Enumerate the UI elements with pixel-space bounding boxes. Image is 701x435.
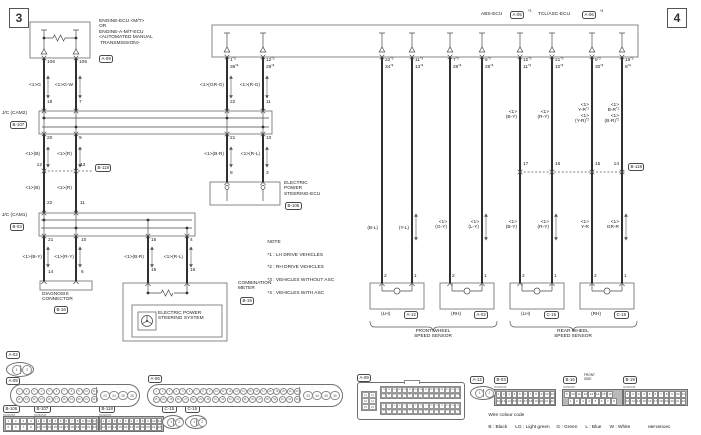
page-ref-left: 3 bbox=[9, 8, 29, 28]
pin-number: 11*4 bbox=[523, 65, 531, 70]
wire-label: <1>(B) bbox=[25, 186, 40, 191]
pin-cell: 11 bbox=[550, 391, 555, 398]
pin-circle: 21 bbox=[83, 396, 90, 403]
connector-oval-A-05: 1234567891011121314151617181920212223242… bbox=[10, 384, 140, 407]
diagnosis-connector-title: DIAGNOSISCONNECTOR bbox=[42, 292, 73, 303]
pin-circle: 14 bbox=[31, 396, 38, 403]
connector-oval-A-06: 1234567891011121314151617181920212223242… bbox=[147, 384, 343, 407]
pin-circle: 24 bbox=[160, 396, 167, 403]
pin-circle: 9 bbox=[76, 388, 83, 395]
pin-circle: 29 bbox=[197, 396, 204, 403]
strip-connector-label: A-12 bbox=[470, 376, 484, 384]
strip-connector-label: A-09 bbox=[357, 374, 371, 382]
pin-number: 6 bbox=[81, 270, 84, 275]
pin-circle: 19 bbox=[68, 396, 75, 403]
pin-number: 12 bbox=[37, 163, 42, 168]
pin-cell: 5 bbox=[5, 424, 13, 431]
pin-number: 10 bbox=[81, 238, 86, 243]
pin-circle: 41 bbox=[286, 396, 293, 403]
sensor-side-label: (RH) bbox=[451, 312, 461, 317]
sensor-side-label: (LH) bbox=[381, 312, 390, 317]
sensor-side-label: (LH) bbox=[521, 312, 530, 317]
pin-circle: 2 bbox=[22, 365, 32, 375]
wire-label: <1>G-W bbox=[55, 83, 73, 88]
pin-circle: 10 bbox=[213, 388, 220, 395]
combination-meter-label: B-19 bbox=[240, 297, 254, 305]
connector-pin-grid-B-19: 12345678910111213141516171819202122 bbox=[623, 389, 688, 406]
pin-number: 1 bbox=[554, 274, 557, 279]
eps-ecu-title: ELECTRICPOWERSTEERING-ECU bbox=[284, 181, 320, 197]
strip-connector-label: B-16 bbox=[563, 376, 577, 384]
pin-circle: 39 bbox=[271, 396, 278, 403]
wire-label: <1>(R-G) bbox=[240, 83, 260, 88]
pin-circle: 12 bbox=[16, 396, 23, 403]
pin-number: 39*4 bbox=[230, 65, 238, 70]
pin-number: 2 bbox=[452, 274, 455, 279]
pin-circle: 10 bbox=[83, 388, 90, 395]
strip-connector-label: A-06 bbox=[148, 375, 162, 383]
wire-label: <1>(B-R) bbox=[204, 152, 224, 157]
pin-circle: 4 bbox=[38, 388, 45, 395]
wire-label: <1>GR-R bbox=[607, 220, 619, 231]
pin-cell: 15 bbox=[362, 404, 369, 410]
pin-block: 7778798081828384858687888990919293949596… bbox=[380, 386, 461, 399]
wire-label: <1>(B-R) bbox=[124, 255, 144, 260]
pin-circle: 40 bbox=[279, 396, 286, 403]
engine-ecu-connector-label: A-09 bbox=[99, 55, 113, 63]
pin-number: 22 bbox=[47, 201, 52, 206]
pin-number: 13*4 bbox=[415, 65, 423, 70]
connector-pin-grid-B-118: 12345678910111213141516171819202122 bbox=[99, 416, 164, 432]
pin-number: 30*4 bbox=[595, 65, 603, 70]
pin-number: 18 bbox=[47, 100, 52, 105]
pin-circle: 3 bbox=[166, 388, 173, 395]
footnote-ref: *4 bbox=[600, 9, 603, 14]
wire-label: <1>(R-L) bbox=[164, 255, 183, 260]
wire-colour-legend: Wire colour code B : Black LG : Light gr… bbox=[483, 407, 634, 435]
pin-number: 16 bbox=[190, 268, 195, 273]
strip-connector-label: B-03 bbox=[494, 376, 508, 384]
pin-circle: 2 bbox=[198, 418, 207, 427]
wire-label: <1>(L-Y) bbox=[468, 220, 479, 231]
connector-rect-A-09: 1112131415167778798081828384858687888990… bbox=[357, 382, 465, 420]
pin-number: 15 bbox=[151, 238, 156, 243]
pin-circle: 30 bbox=[204, 396, 211, 403]
oval-divider bbox=[483, 389, 484, 397]
pin-number: 3 bbox=[266, 171, 269, 176]
pin-circle: 20 bbox=[76, 396, 83, 403]
pin-cell: 22 bbox=[92, 424, 98, 431]
pin-circle: 25 bbox=[167, 396, 174, 403]
pin-cell: 22 bbox=[681, 398, 687, 405]
wire-label: <1>(R) bbox=[57, 152, 72, 157]
pin-circle: 1 bbox=[16, 388, 23, 395]
oval-divider bbox=[96, 387, 97, 402]
pin-number: 28*4 bbox=[485, 65, 493, 70]
sensor-connector-label: C-15 bbox=[544, 311, 559, 319]
pin-number: 8*4 bbox=[625, 65, 631, 70]
wire-label: <1>G bbox=[29, 83, 41, 88]
tcl-asc-ecu-title: TCL/ASC-ECU bbox=[538, 12, 570, 17]
pin-circle: 34 bbox=[234, 396, 241, 403]
front-side-note: FRONTSIDE bbox=[584, 374, 595, 381]
connector-oval-C-15: 12 bbox=[162, 415, 184, 429]
pin-circle: 26 bbox=[175, 396, 182, 403]
connector-pin-grid-B-107: 12345678910111213141516171819202122 bbox=[34, 416, 99, 432]
pin-circle: 46 bbox=[330, 391, 340, 401]
pin-circle: 2 bbox=[485, 389, 494, 398]
note-line: *3 : VEHICLES WITHOUT ASC bbox=[267, 278, 334, 283]
note-line: *2 : RH DRIVE VEHICLES bbox=[267, 265, 324, 270]
pin-number: 2 bbox=[522, 274, 525, 279]
page-ref-right: 4 bbox=[667, 8, 687, 28]
pin-circle: 7 bbox=[61, 388, 68, 395]
pin-circle: 23 bbox=[153, 396, 160, 403]
wire-label: <1>(B-Y) bbox=[506, 220, 517, 231]
pin-circle: 17 bbox=[260, 388, 267, 395]
pin-block: 111213141516 bbox=[361, 391, 377, 411]
oval-divider bbox=[299, 387, 300, 402]
pin-cell: 22 bbox=[157, 424, 163, 431]
connector-pin-grid-B-16: 91011121314151612345678 bbox=[562, 389, 623, 406]
pin-number: 105 bbox=[79, 60, 87, 65]
legend-row: B : Black LG : Light green G : Green L :… bbox=[488, 425, 630, 430]
pin-circle: 36 bbox=[249, 396, 256, 403]
pin-number: 8 bbox=[230, 171, 233, 176]
pin-number: 11 bbox=[80, 201, 85, 206]
pin-number: 21 bbox=[230, 136, 235, 141]
connector-pin-grid-B-03: 12345678910111213141516171819202122 bbox=[494, 389, 556, 406]
wire-label: <1>Y-R*1<1>(Y-R)*2 bbox=[575, 103, 589, 125]
wire-label: <1>B-R*1<1>(B-R)*2 bbox=[605, 103, 619, 125]
wire-label: (B-L) bbox=[367, 226, 378, 231]
pin-cell: 8 bbox=[611, 398, 617, 405]
abs-ecu-title: ABS-ECU bbox=[481, 12, 502, 17]
connector-pin-grid-B-106: 12345678 bbox=[3, 416, 36, 432]
pin-circle: 5 bbox=[46, 388, 53, 395]
strip-connector-label: B-19 bbox=[623, 376, 637, 384]
jc-cam1-title: J/C (CAM1) bbox=[2, 213, 27, 218]
note-line: *4 : VEHICLES WITH ASC bbox=[267, 291, 324, 296]
wire-label: <1>(B-Y) bbox=[23, 255, 42, 260]
wire-label: <1>(R-L) bbox=[241, 152, 260, 157]
pin-circle: 14 bbox=[240, 388, 247, 395]
pin-number: 29*4 bbox=[453, 65, 461, 70]
pin-cell: 16 bbox=[369, 404, 376, 410]
pin-circle: 2 bbox=[23, 388, 30, 395]
pin-number: 16 bbox=[555, 162, 560, 167]
pin-number: 2 bbox=[384, 274, 387, 279]
pin-number: 9 bbox=[79, 136, 82, 141]
doc-code: HBF15E029C bbox=[648, 425, 670, 430]
pin-number: 29*4 bbox=[266, 65, 274, 70]
note-title: NOTE bbox=[267, 240, 280, 245]
oval-divider bbox=[20, 365, 21, 374]
connector-notch bbox=[404, 380, 420, 384]
strip-connector-label: A-02 bbox=[6, 351, 20, 359]
combination-meter-title: COMBINATIONMETER bbox=[238, 281, 272, 292]
sensor-connector-label: A-12 bbox=[404, 311, 418, 319]
abs-ecu-connector-label: A-05 bbox=[510, 11, 524, 19]
pin-number: 15 bbox=[595, 162, 600, 167]
pin-number: 10*4 bbox=[555, 65, 563, 70]
pin-circle: 8 bbox=[68, 388, 75, 395]
pin-number: 15 bbox=[151, 268, 156, 273]
pin-cell: 6 bbox=[12, 424, 20, 431]
pin-number: 21 bbox=[48, 238, 53, 243]
pin-cell: 7 bbox=[20, 424, 28, 431]
diagnosis-connector-label: B-16 bbox=[54, 306, 68, 314]
pin-number: 4 bbox=[190, 238, 193, 243]
pin-number: 2 bbox=[594, 274, 597, 279]
pin-block: 1234567891011121314151617181920212223242… bbox=[380, 402, 461, 415]
eps-system-title: ELECTRIC POWERSTEERING SYSTEM bbox=[158, 311, 204, 322]
pin-cell: 16 bbox=[607, 391, 613, 398]
pin-number: 1 bbox=[484, 274, 487, 279]
eps-ecu-connector-label: B-106 bbox=[285, 202, 302, 210]
wire-label: <1>(R-Y) bbox=[538, 110, 549, 121]
pin-circle: 27 bbox=[182, 396, 189, 403]
pin-number: 14 bbox=[48, 270, 53, 275]
wire-label: <1>(B-Y) bbox=[506, 110, 517, 121]
pin-circle: 38 bbox=[264, 396, 271, 403]
note-block: NOTE *1 : LH DRIVE VEHICLES *2 : RH DRIV… bbox=[262, 234, 334, 303]
pin-number: 20 bbox=[47, 136, 52, 141]
wire-label: <1>(R) bbox=[57, 186, 72, 191]
pin-number: 34*4 bbox=[385, 65, 393, 70]
pin-circle: 32 bbox=[219, 396, 226, 403]
pin-circle: 31 bbox=[212, 396, 219, 403]
front-wheel-sensor-title: FRONT WHEELSPEED SENSOR bbox=[414, 329, 452, 340]
wire-label: <1>(R-Y) bbox=[54, 255, 74, 260]
sensor-side-label: (RH) bbox=[591, 312, 601, 317]
wire-label: <1>(G-Y) bbox=[435, 220, 447, 231]
b118-junction-label: B-118 bbox=[95, 164, 111, 172]
connector-oval-A-02: 12 bbox=[6, 362, 34, 377]
legend-title: Wire colour code bbox=[488, 413, 524, 418]
pin-number: 7 bbox=[79, 100, 82, 105]
pin-number: 1 bbox=[414, 274, 417, 279]
pin-circle: 16 bbox=[46, 396, 53, 403]
sensor-connector-label: C-16 bbox=[614, 311, 629, 319]
wire-label: <1>(B) bbox=[25, 152, 40, 157]
footnote-ref: *3 bbox=[528, 9, 531, 14]
pin-circle: 28 bbox=[190, 396, 197, 403]
jc-cam2-title: J/C (CAM2) bbox=[2, 111, 27, 116]
pin-number: 22 bbox=[230, 100, 235, 105]
pin-cell: 11 bbox=[681, 391, 687, 398]
connector-oval-C-16: 12 bbox=[185, 415, 207, 429]
engine-ecu-title: ENGINE-ECU <M/T>ORENGINE-A-M/T-ECU<AUTOM… bbox=[99, 19, 153, 46]
wiring-diagram-canvas: 3 4 NOTE *1 : LH DRIVE VEHICLES *2 : RH … bbox=[0, 0, 701, 435]
pin-cell: 106 bbox=[455, 393, 460, 399]
b118-junction-label: B-118 bbox=[628, 163, 644, 171]
pin-circle: 37 bbox=[256, 396, 263, 403]
wire-label: <1>(GR-G) bbox=[200, 83, 224, 88]
pin-number: 14 bbox=[614, 162, 619, 167]
pin-circle: 15 bbox=[38, 396, 45, 403]
jc-cam1-connector-label: B-03 bbox=[10, 223, 24, 231]
pin-circle: 18 bbox=[61, 396, 68, 403]
wire-label: (Y-L) bbox=[399, 226, 409, 231]
rear-wheel-sensor-title: REAR WHEELSPEED SENSOR bbox=[554, 329, 592, 340]
pin-circle: 17 bbox=[53, 396, 60, 403]
pin-circle: 6 bbox=[53, 388, 60, 395]
pin-number: 1 bbox=[624, 274, 627, 279]
pin-number: 13 bbox=[80, 163, 85, 168]
pin-circle: 35 bbox=[242, 396, 249, 403]
pin-circle: 3 bbox=[31, 388, 38, 395]
note-line: *1 : LH DRIVE VEHICLES bbox=[267, 253, 323, 258]
pin-circle: 2 bbox=[175, 418, 184, 427]
pin-cell: 30 bbox=[455, 409, 460, 415]
wire-label: <1>Y-R bbox=[581, 220, 589, 231]
pin-number: 11 bbox=[266, 100, 271, 105]
wire-label: <1>(R-Y) bbox=[538, 220, 549, 231]
pin-circle: 7 bbox=[193, 388, 200, 395]
connector-oval-A-12: 12 bbox=[470, 386, 496, 400]
sensor-connector-label: A-02 bbox=[474, 311, 488, 319]
pin-circle: 13 bbox=[23, 396, 30, 403]
pin-number: 106 bbox=[47, 60, 55, 65]
pin-circle: 33 bbox=[227, 396, 234, 403]
pin-cell: 22 bbox=[550, 398, 555, 405]
pin-number: 10 bbox=[266, 136, 271, 141]
tcl-asc-connector-label: A-06 bbox=[582, 11, 596, 19]
pin-number: 17 bbox=[523, 162, 528, 167]
jc-cam2-connector-label: B-107 bbox=[10, 121, 27, 129]
pin-circle: 21 bbox=[287, 388, 294, 395]
oval-divider bbox=[196, 418, 197, 426]
oval-divider bbox=[173, 418, 174, 426]
pin-circle: 26 bbox=[127, 391, 137, 401]
